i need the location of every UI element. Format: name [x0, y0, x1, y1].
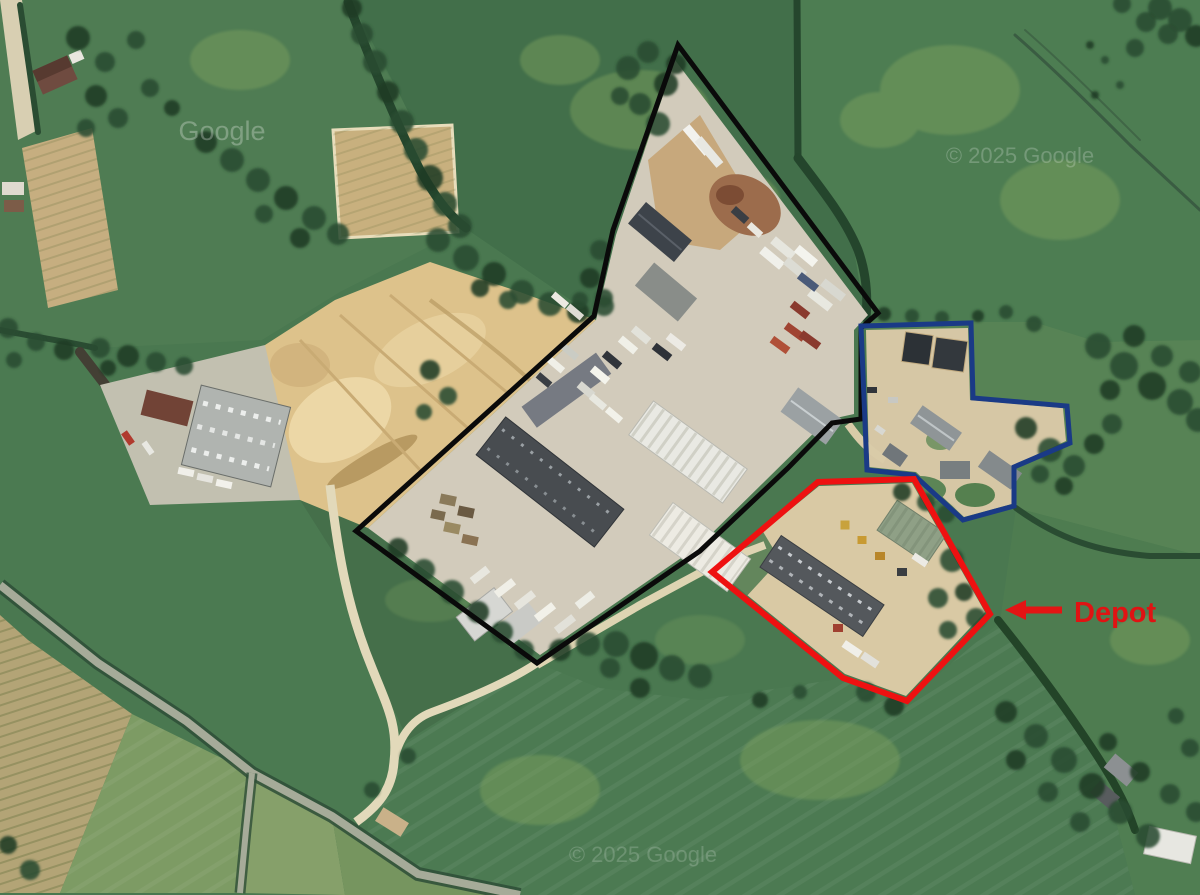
- parcel-outline-blue: [861, 323, 1070, 520]
- depot-arrow-head: [1005, 600, 1026, 620]
- depot-outline-red: [712, 479, 990, 701]
- annotation-overlay: DepotGoogle© 2025 Google© 2025 Google: [0, 0, 1200, 895]
- google-watermark-topleft: Google: [178, 116, 265, 146]
- depot-label: Depot: [1074, 597, 1157, 629]
- google-watermark-bottom: © 2025 Google: [569, 842, 717, 867]
- site-boundary-black: [356, 45, 878, 663]
- satellite-map[interactable]: DepotGoogle© 2025 Google© 2025 Google: [0, 0, 1200, 895]
- google-watermark-topright: © 2025 Google: [946, 143, 1094, 168]
